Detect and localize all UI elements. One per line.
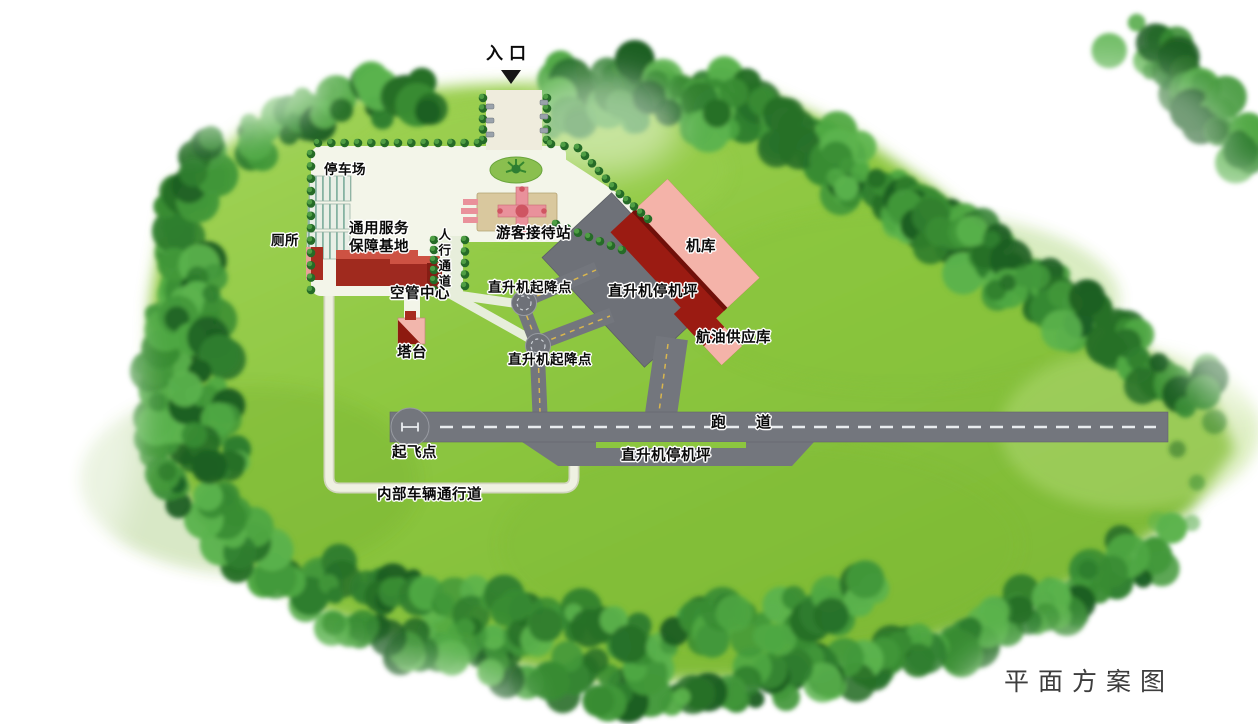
label-helicopter-apron: 直升机停机坪 <box>608 284 698 302</box>
label-toilet: 厕所 <box>271 233 299 249</box>
label-entrance: 入口 <box>486 44 532 65</box>
label-atc-center: 空管中心 <box>390 286 450 304</box>
label-internal-road: 内部车辆通行道 <box>377 487 482 505</box>
label-control-tower: 塔台 <box>397 345 427 363</box>
entrance-arrow-icon <box>501 70 521 84</box>
plan-caption: 平面方案图 <box>1004 662 1174 698</box>
label-fuel-depot: 航油供应库 <box>696 330 771 348</box>
entrance-road <box>486 90 542 150</box>
label-pedestrian-walkway: 人行通道 <box>436 228 451 290</box>
label-helipad-upper: 直升机起降点 <box>488 280 572 296</box>
label-helipad-lower: 直升机起降点 <box>508 352 592 368</box>
label-service-base: 通用服务 保障基地 <box>337 221 421 256</box>
label-apron-south: 直升机停机坪 <box>621 448 711 466</box>
label-parking: 停车场 <box>324 162 366 178</box>
site-plan: 入口 停车场 厕所 通用服务 保障基地 人行通道 游客接待站 机库 空管中心 直… <box>0 0 1258 724</box>
label-visitor-reception: 游客接待站 <box>496 226 571 244</box>
center-island <box>490 157 542 183</box>
label-hangar: 机库 <box>686 239 716 257</box>
label-takeoff-point: 起飞点 <box>392 445 437 463</box>
site-plan-map <box>0 0 1258 724</box>
label-runway: 跑道 <box>711 413 801 431</box>
